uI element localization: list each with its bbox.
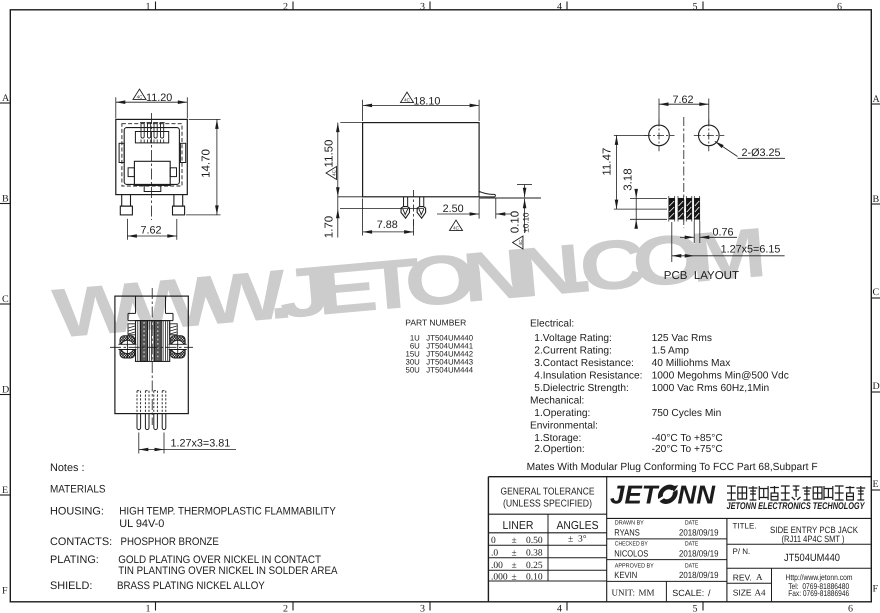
svg-text:±: ±	[512, 549, 517, 559]
svg-text:DATE: DATE	[685, 562, 698, 569]
svg-text:2018/09/19: 2018/09/19	[679, 570, 719, 580]
svg-text:APPROVED BY: APPROVED BY	[615, 562, 654, 569]
svg-text:TIN PLANTING OVER NICKEL IN SO: TIN PLANTING OVER NICKEL IN SOLDER AREA	[118, 565, 338, 577]
svg-text:1.Operating:: 1.Operating:	[534, 408, 590, 419]
svg-text:PART NUMBER: PART NUMBER	[405, 318, 466, 328]
svg-text:3.18: 3.18	[623, 168, 635, 190]
svg-text:3.Contact Resistance:: 3.Contact Resistance:	[534, 358, 634, 369]
svg-text:4C: 4C	[137, 94, 144, 99]
svg-text:5: 5	[693, 604, 698, 613]
svg-text:7.88: 7.88	[377, 219, 398, 231]
svg-text:.0: .0	[491, 549, 498, 559]
svg-text:5: 5	[693, 2, 698, 13]
svg-text:1.Storage:: 1.Storage:	[534, 433, 581, 444]
svg-text:JETONN ELECTRONICS TECHNOLOGY: JETONN ELECTRONICS TECHNOLOGY	[727, 501, 866, 512]
svg-text:5.Dielectric Strength:: 5.Dielectric Strength:	[534, 383, 629, 394]
svg-text:1000 Megohms Min@500 Vdc: 1000 Megohms Min@500 Vdc	[652, 371, 789, 382]
svg-text:4: 4	[557, 604, 562, 613]
svg-text:Http://www.jetonn.com: Http://www.jetonn.com	[786, 573, 853, 582]
svg-text:TITLE.: TITLE.	[733, 522, 757, 531]
svg-text:Notes: Notes	[50, 462, 79, 474]
svg-text:DATE: DATE	[685, 541, 698, 548]
svg-text:PHOSPHOR BRONZE: PHOSPHOR BRONZE	[121, 536, 219, 548]
svg-text:1: 1	[146, 2, 151, 13]
svg-text:0.10: 0.10	[510, 211, 522, 233]
svg-text:ANGLES: ANGLES	[557, 520, 599, 532]
svg-text:4: 4	[557, 2, 562, 13]
svg-text:Environmental:: Environmental:	[530, 421, 598, 432]
svg-text:2018/09/19: 2018/09/19	[679, 549, 719, 559]
svg-text:40 Milliohms Max: 40 Milliohms Max	[652, 358, 731, 369]
svg-text:6: 6	[848, 604, 853, 613]
svg-text:1.27x5=6.15: 1.27x5=6.15	[721, 244, 781, 256]
svg-text:0: 0	[491, 536, 496, 546]
svg-text:JT504UM440: JT504UM440	[784, 552, 840, 564]
svg-text:-20°C To +75°C: -20°C To +75°C	[652, 444, 723, 455]
svg-text:± 3°: ± 3°	[568, 535, 587, 545]
svg-text:1.Voltage Rating:: 1.Voltage Rating:	[534, 333, 612, 344]
svg-text:Fax: 0769-81886946: Fax: 0769-81886946	[788, 589, 849, 598]
svg-text:4C: 4C	[518, 239, 523, 246]
svg-text:B: B	[2, 194, 9, 205]
svg-text:A: A	[756, 572, 763, 582]
svg-text:C: C	[2, 294, 9, 305]
svg-text:F: F	[2, 586, 8, 597]
svg-text:4C: 4C	[453, 225, 460, 230]
svg-text:A4: A4	[755, 588, 766, 598]
svg-text:50U: 50U	[405, 365, 420, 374]
svg-text:D: D	[2, 385, 9, 396]
svg-text:2: 2	[283, 604, 288, 613]
svg-text:±: ±	[512, 536, 517, 546]
svg-text:DRAWN BY: DRAWN BY	[615, 520, 644, 527]
svg-text:0.76: 0.76	[713, 226, 734, 238]
svg-text:(UNLESS SPECIFIED): (UNLESS SPECIFIED)	[503, 499, 592, 510]
svg-text:UNIT:: UNIT:	[612, 588, 636, 598]
svg-text:±: ±	[512, 561, 517, 571]
svg-text:2: 2	[283, 2, 288, 13]
svg-text:UL 94V-0: UL 94V-0	[119, 518, 164, 530]
svg-text:MM: MM	[639, 588, 655, 598]
svg-text:NICOLOS: NICOLOS	[614, 549, 648, 559]
svg-text:B: B	[873, 194, 880, 205]
svg-text:750 Cycles Min: 750 Cycles Min	[652, 408, 722, 419]
svg-text:GENERAL TOLERANCE: GENERAL TOLERANCE	[501, 487, 595, 498]
svg-text:125 Vac Rms: 125 Vac Rms	[652, 333, 712, 344]
svg-text::: :	[82, 462, 85, 474]
svg-text:HOUSING:: HOUSING:	[50, 506, 104, 518]
svg-text:7.62: 7.62	[673, 94, 694, 106]
svg-text:1.70: 1.70	[324, 216, 336, 238]
svg-text:7.62: 7.62	[141, 225, 162, 237]
svg-text:PCB LAYOUT: PCB LAYOUT	[664, 270, 739, 282]
svg-text:F: F	[873, 584, 879, 595]
svg-text:11.50: 11.50	[324, 140, 336, 168]
svg-text:0.38: 0.38	[526, 549, 543, 559]
svg-text:BRASS PLATING NICKEL ALLOY: BRASS PLATING NICKEL ALLOY	[117, 580, 265, 592]
svg-text:CONTACTS:: CONTACTS:	[50, 536, 112, 548]
svg-text:4.Insulation Resistance:: 4.Insulation Resistance:	[534, 371, 642, 382]
svg-text:1000 Vac Rms 60Hz,1Min: 1000 Vac Rms 60Hz,1Min	[652, 383, 770, 394]
svg-text:E: E	[873, 479, 879, 490]
svg-text:C: C	[873, 287, 880, 298]
svg-text:±: ±	[512, 572, 517, 582]
svg-text:HIGH TEMP. THERMOPLASTIC FLAMM: HIGH TEMP. THERMOPLASTIC FLAMMABILITY	[119, 506, 336, 518]
svg-text:A: A	[873, 94, 880, 105]
svg-text:11.20: 11.20	[146, 92, 172, 104]
svg-text:1.27x3=3.81: 1.27x3=3.81	[171, 438, 231, 450]
svg-text:±0.10: ±0.10	[522, 212, 531, 233]
svg-text:SHIELD:: SHIELD:	[50, 580, 92, 592]
svg-text:4C: 4C	[404, 98, 411, 103]
svg-text:11.47: 11.47	[602, 148, 614, 176]
svg-text:LINER: LINER	[503, 520, 534, 532]
svg-text:0.50: 0.50	[526, 536, 543, 546]
svg-text:KEVIN: KEVIN	[614, 570, 637, 580]
svg-text:E: E	[2, 485, 8, 496]
svg-text:1: 1	[146, 604, 151, 613]
svg-text:Electrical:: Electrical:	[530, 319, 574, 330]
svg-text:14.70: 14.70	[201, 149, 213, 178]
svg-text:-40°C To +85°C: -40°C To +85°C	[652, 433, 723, 444]
svg-text:JET: JET	[610, 480, 660, 510]
svg-text:0.25: 0.25	[526, 561, 543, 571]
svg-text:MATERIALS: MATERIALS	[50, 484, 106, 496]
svg-text:.000: .000	[491, 572, 508, 582]
svg-text:1.5 Amp: 1.5 Amp	[652, 346, 690, 357]
svg-text:SCALE:: SCALE:	[672, 588, 704, 598]
svg-text:Mechanical:: Mechanical:	[530, 396, 584, 407]
svg-text:2-Ø3.25: 2-Ø3.25	[742, 147, 781, 159]
svg-text:0.10: 0.10	[526, 572, 543, 582]
svg-text:4C: 4C	[331, 169, 336, 176]
svg-text:18.10: 18.10	[413, 95, 440, 107]
svg-text:(RJ11 4P4C SMT ): (RJ11 4P4C SMT )	[782, 534, 845, 544]
svg-text:3: 3	[420, 604, 425, 613]
svg-text:PLATING:: PLATING:	[50, 554, 99, 566]
svg-text:2018/09/19: 2018/09/19	[679, 528, 719, 538]
svg-text:JT504UM444: JT504UM444	[426, 365, 473, 374]
svg-text:DATE: DATE	[685, 520, 698, 527]
svg-text:SIZE: SIZE	[733, 588, 752, 598]
svg-text:REV.: REV.	[733, 572, 752, 582]
svg-text:CHECKED BY: CHECKED BY	[615, 541, 648, 548]
svg-text:6: 6	[837, 2, 842, 13]
svg-text:2.50: 2.50	[443, 203, 464, 215]
svg-text:2.Current Rating:: 2.Current Rating:	[534, 346, 612, 357]
svg-text:A: A	[2, 93, 10, 104]
svg-text:.00: .00	[491, 561, 503, 571]
svg-text:NN: NN	[678, 480, 717, 510]
svg-text:RYANS: RYANS	[614, 528, 640, 538]
svg-text:Mates With Modular Plug Confor: Mates With Modular Plug Conforming To FC…	[527, 462, 818, 473]
svg-text:3: 3	[420, 2, 425, 13]
svg-text:P/ N.: P/ N.	[733, 547, 751, 556]
svg-text:2.Opertion:: 2.Opertion:	[534, 444, 584, 455]
svg-text:D: D	[873, 381, 880, 392]
